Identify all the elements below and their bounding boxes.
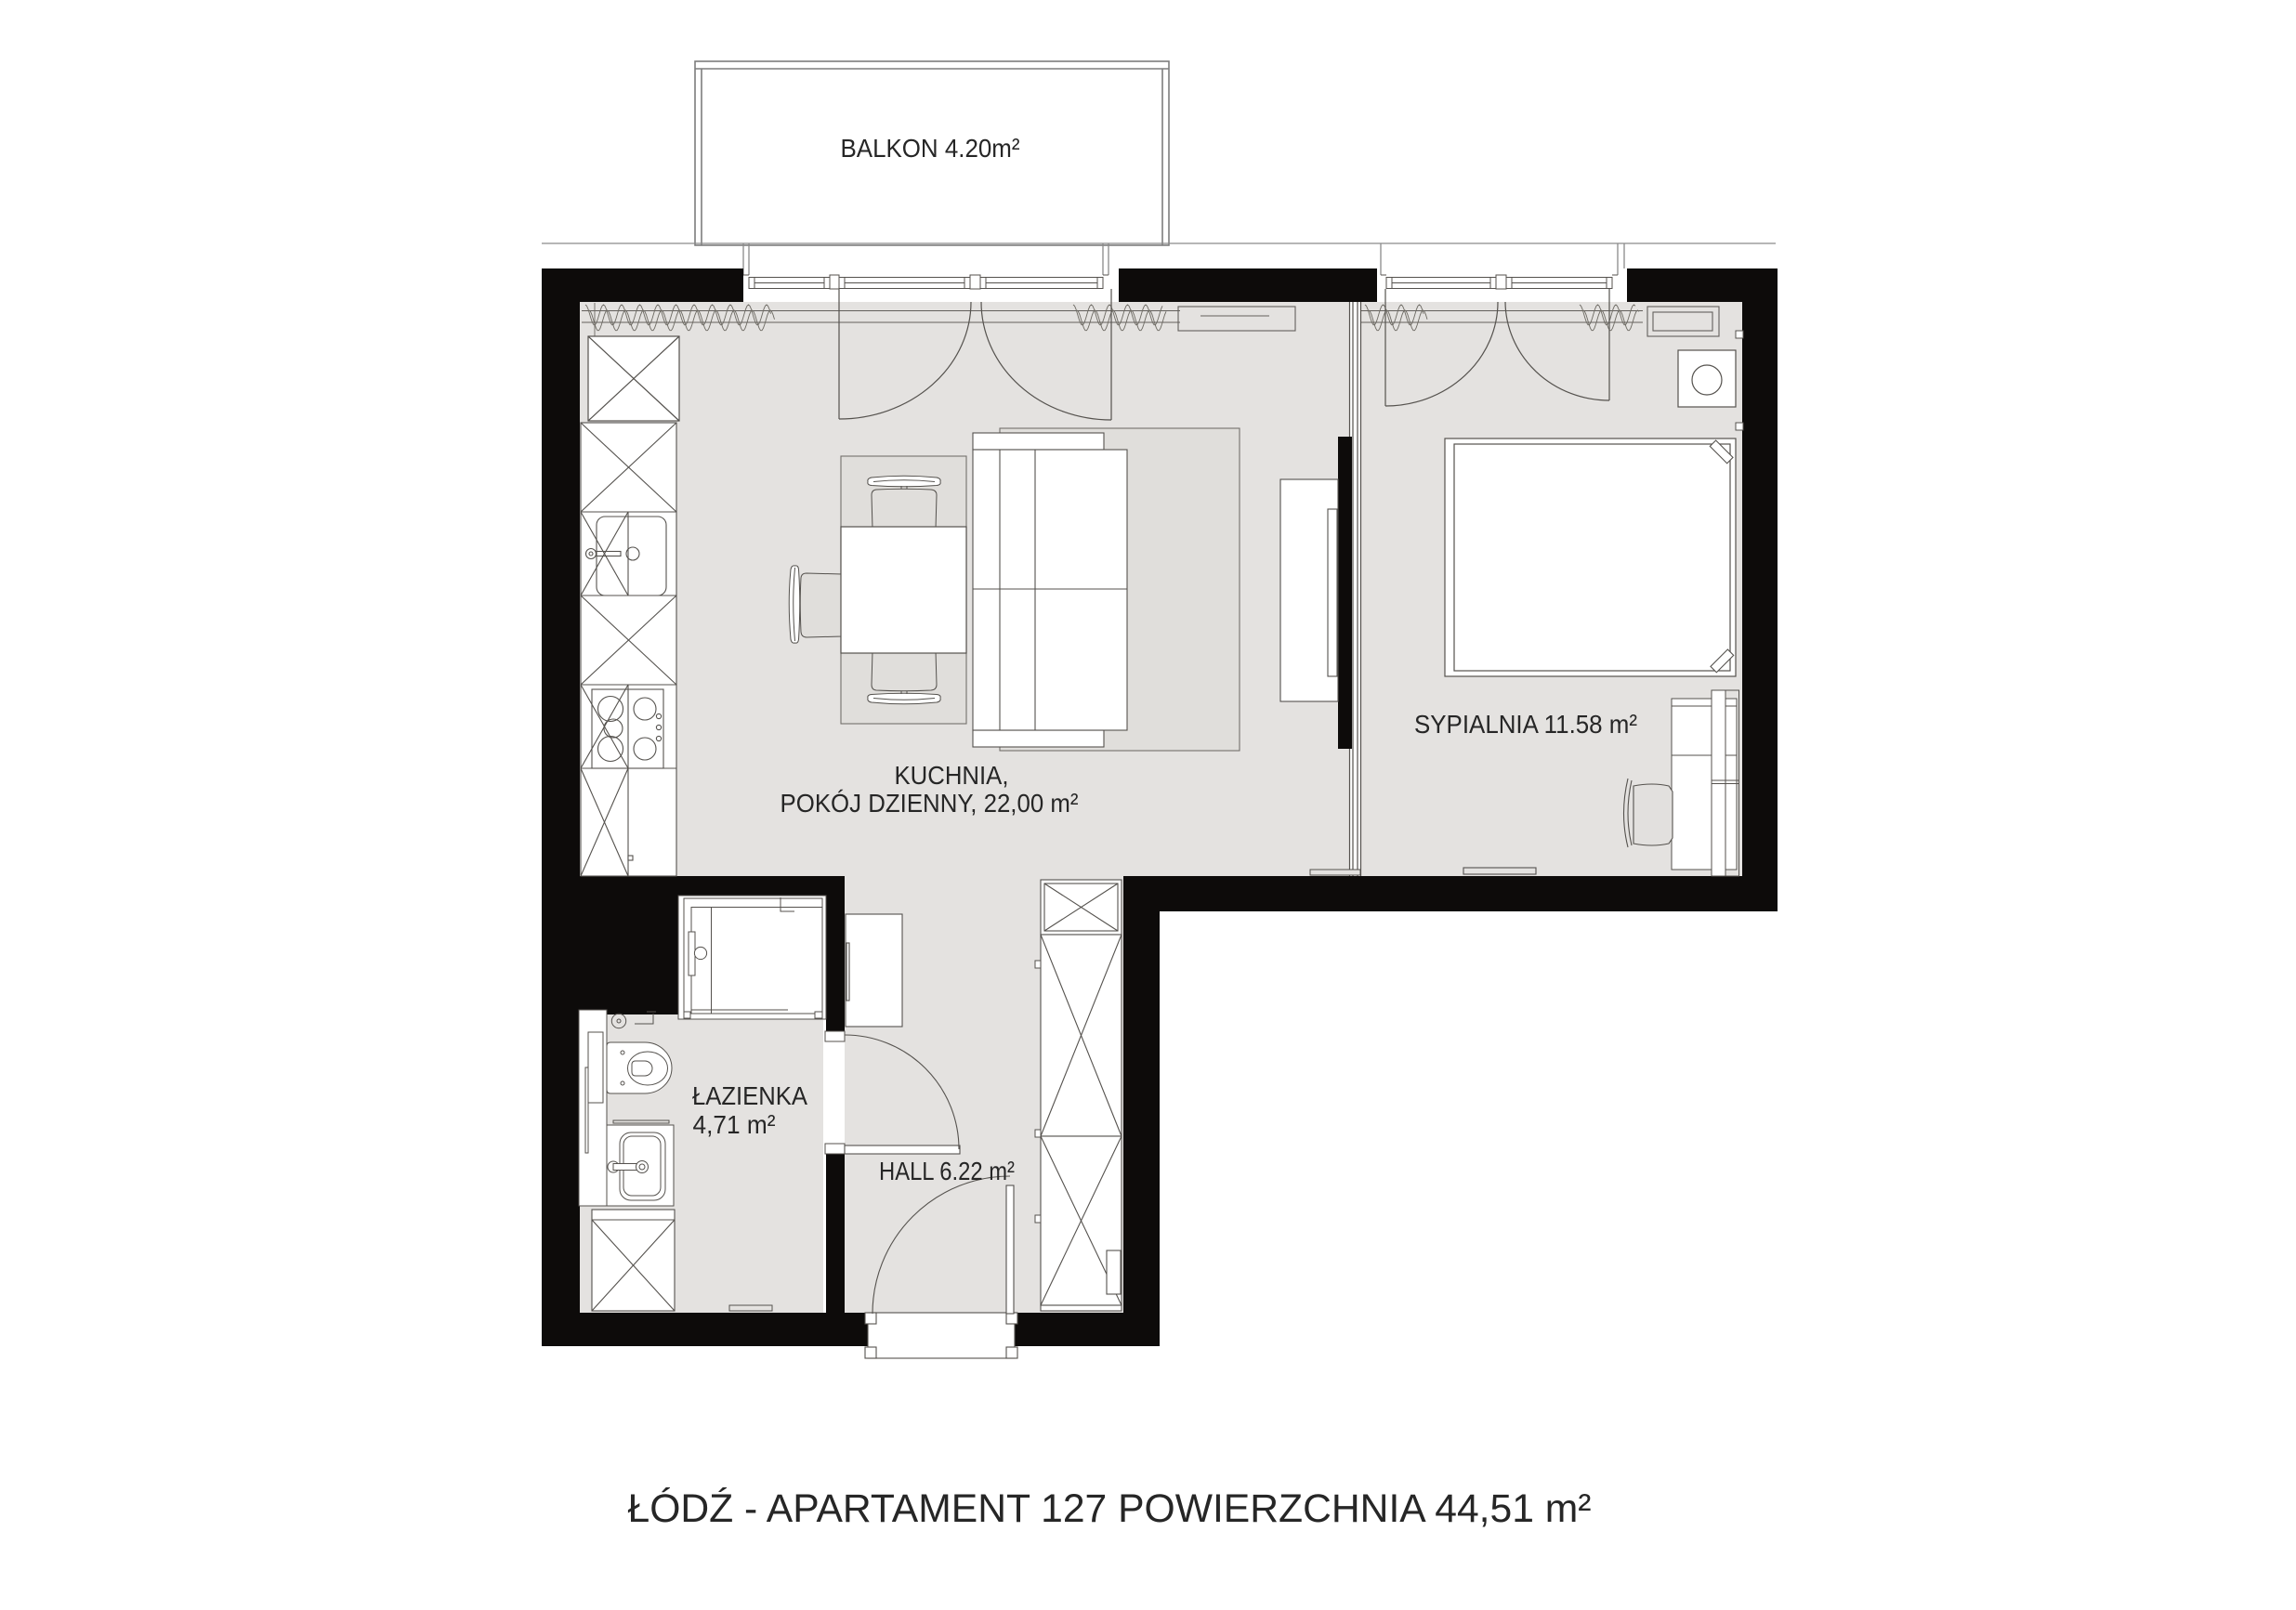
svg-text:ŁÓDŹ - APARTAMENT 127 POWIERZC: ŁÓDŹ - APARTAMENT 127 POWIERZCHNIA 44,51…: [628, 1486, 1592, 1531]
svg-text:4,71 m²: 4,71 m²: [693, 1110, 776, 1139]
svg-text:POKÓJ DZIENNY, 22,00 m²: POKÓJ DZIENNY, 22,00 m²: [781, 789, 1079, 818]
svg-text:HALL 6.22 m²: HALL 6.22 m²: [879, 1157, 1015, 1185]
svg-text:ŁAZIENKA: ŁAZIENKA: [692, 1081, 807, 1110]
svg-text:SYPIALNIA 11.58 m²: SYPIALNIA 11.58 m²: [1414, 710, 1637, 739]
svg-text:KUCHNIA,: KUCHNIA,: [895, 761, 1009, 790]
svg-text:BALKON 4.20m²: BALKON 4.20m²: [841, 134, 1020, 163]
